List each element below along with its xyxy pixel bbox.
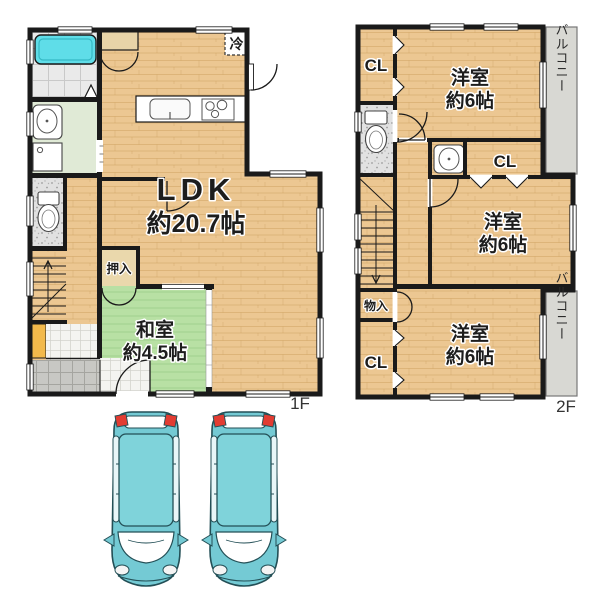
toilet-icon xyxy=(38,192,59,232)
closet-bottom-label: CL xyxy=(365,353,388,372)
floor1-plan: LDK 約20.7帖 和室 約4.5帖 押入 冷 1F xyxy=(22,22,332,412)
car-left xyxy=(104,412,188,586)
storage-label: 物入 xyxy=(364,298,388,313)
stove-icon xyxy=(202,99,234,120)
refrigerator-label: 冷 xyxy=(230,36,244,52)
room-bottom-label: 洋室 xyxy=(451,322,489,345)
hall-cabinet xyxy=(100,30,138,50)
toilet2-icon xyxy=(365,111,387,153)
porch-tile xyxy=(30,360,100,394)
vanity-sink-icon xyxy=(33,105,62,139)
washitsu-size-label: 約4.5帖 xyxy=(123,341,187,364)
floorplan-page: LDK 約20.7帖 和室 約4.5帖 押入 冷 1F xyxy=(0,0,606,600)
washing-machine-icon xyxy=(33,143,62,171)
floor2-plan: CL 洋室 約6帖 CL 洋室 約6帖 物入 CL 洋室 約6帖 バルコニー バ… xyxy=(350,22,586,418)
washitsu-label: 和室 xyxy=(136,318,174,341)
washbasin-icon xyxy=(434,145,464,173)
washroom-slide-door xyxy=(96,140,104,172)
genkan-tile xyxy=(46,324,100,360)
closet-top-label: CL xyxy=(365,56,388,75)
fusuma-strip xyxy=(206,288,212,390)
ldk-label: LDK xyxy=(157,172,236,207)
entrance-door-gap xyxy=(116,391,148,397)
oshiire-label: 押入 xyxy=(106,261,132,276)
room-top-size: 約6帖 xyxy=(446,89,495,112)
balcony-top-label: バルコニー xyxy=(554,23,569,93)
kitchen-counter xyxy=(136,96,248,122)
room-bottom-size: 約6帖 xyxy=(446,345,495,368)
car-right xyxy=(202,412,286,586)
ldk-size-label: 約20.7帖 xyxy=(147,209,246,238)
room-top-label: 洋室 xyxy=(451,66,489,89)
floor2-label: 2F xyxy=(556,397,576,416)
room-mid-label: 洋室 xyxy=(484,210,522,233)
parking-cars xyxy=(88,398,318,598)
room-mid-size: 約6帖 xyxy=(479,233,528,256)
balcony-bottom-label: バルコニー xyxy=(554,271,569,341)
closet-mid-label: CL xyxy=(494,152,517,171)
